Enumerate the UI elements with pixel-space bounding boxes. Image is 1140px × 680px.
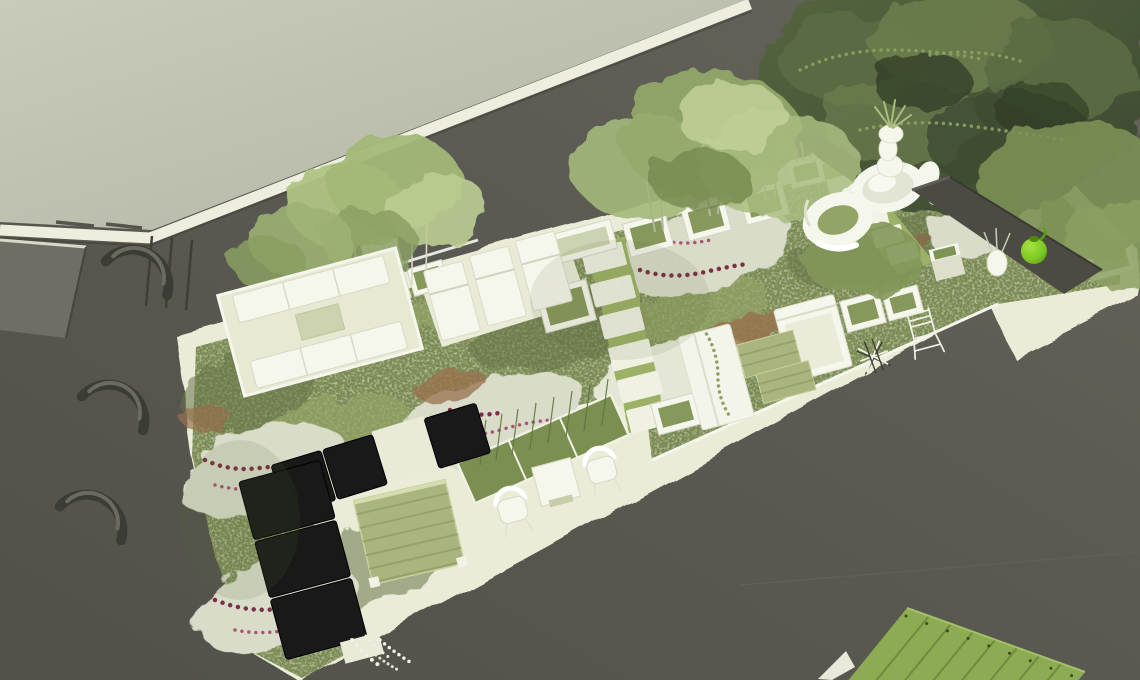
garden-render [0,0,1140,680]
